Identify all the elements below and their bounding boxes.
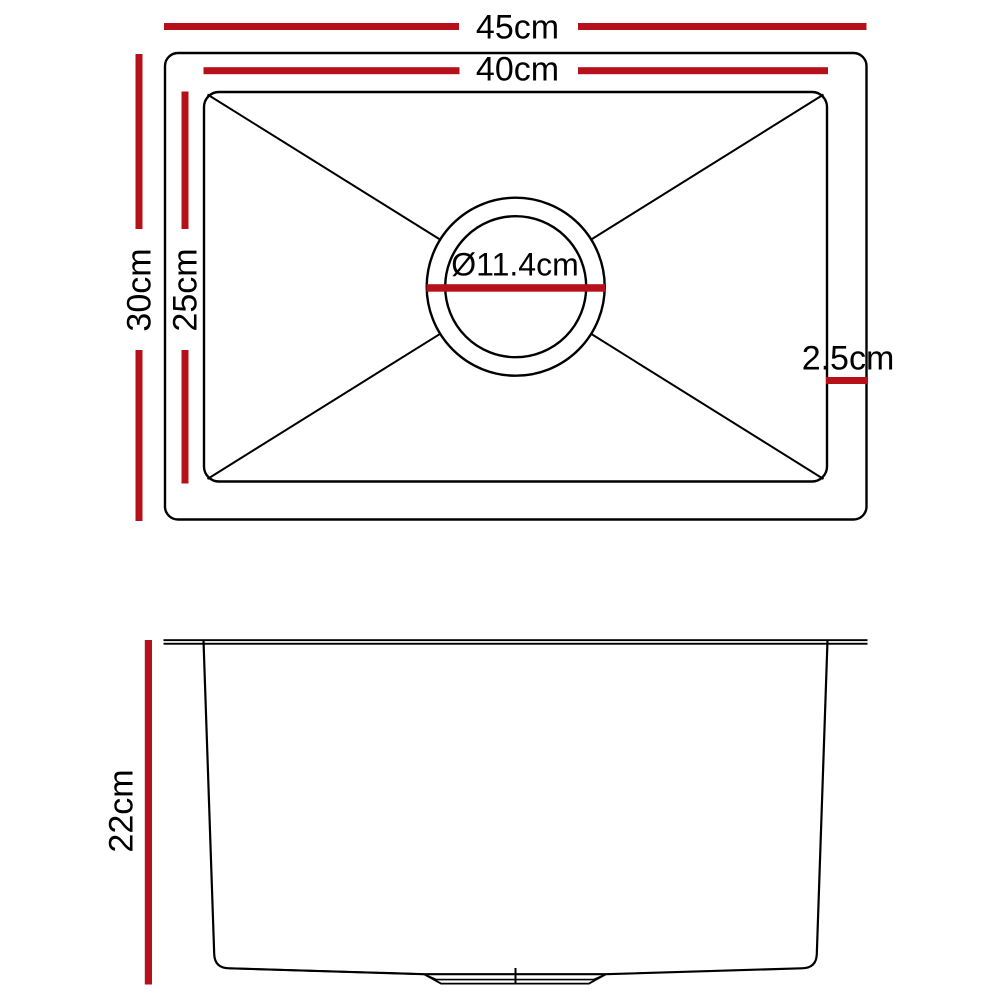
svg-text:22cm: 22cm: [103, 769, 141, 852]
svg-text:45cm: 45cm: [476, 9, 559, 47]
svg-text:2.5cm: 2.5cm: [802, 340, 895, 378]
svg-text:30cm: 30cm: [121, 248, 159, 331]
svg-text:Ø11.4cm: Ø11.4cm: [451, 247, 578, 283]
svg-text:25cm: 25cm: [167, 248, 205, 331]
svg-text:40cm: 40cm: [476, 51, 559, 89]
